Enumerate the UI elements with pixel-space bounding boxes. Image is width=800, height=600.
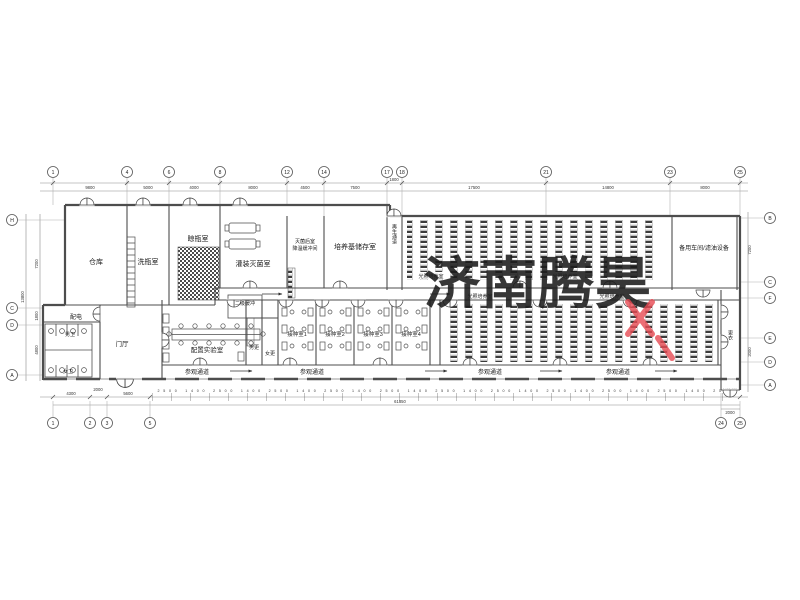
label-visit-corridor-4: 参观通道 bbox=[606, 368, 630, 376]
label-filling-room: 灌装灭菌室 bbox=[236, 259, 271, 268]
dim-left-total: 13800 bbox=[20, 291, 25, 303]
grid-right-4: D bbox=[768, 360, 772, 366]
grid-top-14: 14 bbox=[321, 170, 327, 176]
grid-bottom-24: 24 bbox=[718, 421, 724, 427]
grid-top-8: 8 bbox=[219, 170, 222, 176]
grid-bottom-25: 25 bbox=[737, 421, 743, 427]
dim-top-0: 9800 bbox=[85, 185, 95, 190]
grid-bottom-3: 3 bbox=[106, 421, 109, 427]
grid-top-25: 25 bbox=[737, 170, 743, 176]
dim-top-5: 7500 bbox=[350, 185, 360, 190]
drying-hatch-area bbox=[178, 247, 219, 300]
watermark-text: 济南腾昊 bbox=[424, 252, 652, 315]
grid-bottom-1: 1 bbox=[52, 421, 55, 427]
label-backup-workshop: 备用车间/滤油设备 bbox=[679, 244, 729, 252]
grid-left-2: D bbox=[10, 323, 14, 329]
dim-bottom-right-total: 2000 bbox=[725, 410, 735, 415]
label-inoc-4: 接种室4 bbox=[401, 330, 421, 338]
dim-left-2: 4800 bbox=[34, 345, 39, 355]
dim-bottom-0: 4300 bbox=[66, 391, 76, 396]
dim-top-8: 14800 bbox=[602, 185, 614, 190]
dim-top-3: 8000 bbox=[248, 185, 258, 190]
label-medium-storage: 培养基储存室 bbox=[334, 242, 376, 251]
label-wash-room: 洗瓶室 bbox=[138, 257, 159, 266]
label-regen-corridor: 再生通道 bbox=[391, 224, 397, 245]
label-inoc-3: 接种室3 bbox=[363, 330, 383, 338]
autoclaves bbox=[225, 223, 260, 249]
dim-left-1: 1800 bbox=[34, 311, 39, 321]
dim-bottom-1: 2000 bbox=[93, 387, 103, 392]
dim-bottom-2: 5600 bbox=[123, 391, 133, 396]
grid-left-0: H bbox=[10, 218, 14, 224]
label-inoc-1: 接种室1 bbox=[287, 330, 307, 338]
label-secondary-buffer: 二级缓冲 bbox=[235, 300, 255, 307]
grid-top-1: 1 bbox=[52, 170, 55, 176]
dim-top-7: 17500 bbox=[468, 185, 480, 190]
label-dry-room: 晾瓶室 bbox=[188, 234, 209, 243]
dim-top-9: 8000 bbox=[700, 185, 710, 190]
floor-plan-sheet: 9800 5000 4000 8000 4500 7500 1800 17500… bbox=[0, 0, 800, 600]
label-visit-corridor-3: 参观通道 bbox=[478, 368, 502, 376]
label-female-wc: 女卫 bbox=[63, 368, 73, 375]
dim-top-6: 1800 bbox=[389, 177, 399, 182]
label-male-change: 男更 bbox=[249, 345, 259, 351]
label-female-change: 女更 bbox=[265, 350, 275, 357]
grid-bottom-5: 5 bbox=[149, 421, 152, 427]
grid-right-2: F bbox=[768, 296, 771, 302]
dim-top-1: 5000 bbox=[143, 185, 153, 190]
label-prep-lab: 配置实验室 bbox=[191, 345, 224, 354]
grid-bottom-2: 2 bbox=[89, 421, 92, 427]
label-power-room: 配电 bbox=[70, 313, 82, 321]
label-inoc-2: 接种室2 bbox=[325, 330, 345, 338]
label-visit-corridor-1: 参观通道 bbox=[185, 368, 209, 376]
dim-bottom-run: 2500 1400 2500 1400 2500 1400 2500 1400 … bbox=[157, 389, 732, 393]
label-visit-corridor-2: 参观通道 bbox=[300, 368, 324, 376]
dim-top-2: 4000 bbox=[189, 185, 199, 190]
grid-top-18: 18 bbox=[399, 170, 405, 176]
grid-top-6: 6 bbox=[168, 170, 171, 176]
dim-top-4: 4500 bbox=[300, 185, 310, 190]
wash-rack bbox=[127, 237, 135, 307]
label-foyer: 门厅 bbox=[116, 339, 130, 348]
label-male-wc: 男卫 bbox=[65, 332, 75, 338]
grid-top-4: 4 bbox=[126, 170, 129, 176]
grid-top-17: 17 bbox=[384, 170, 390, 176]
label-post-sterile: 灭菌后室 bbox=[295, 238, 315, 245]
grid-top-23: 23 bbox=[667, 170, 673, 176]
dim-bottom-total: 61850 bbox=[394, 399, 406, 404]
plan-drawing: 9800 5000 4000 8000 4500 7500 1800 17500… bbox=[0, 0, 800, 600]
grid-right-1: C bbox=[768, 280, 772, 286]
dim-left-0: 7200 bbox=[34, 259, 39, 269]
label-change-corridor: 更衣 bbox=[727, 330, 733, 341]
grid-top-12: 12 bbox=[284, 170, 290, 176]
grid-left-1: C bbox=[10, 306, 14, 312]
dim-right-0: 7200 bbox=[747, 245, 752, 255]
label-cool-buffer: 降温缓冲间 bbox=[292, 245, 317, 252]
grid-top-21: 21 bbox=[543, 170, 549, 176]
label-warehouse: 仓库 bbox=[89, 257, 103, 266]
dim-right-1: 2000 bbox=[747, 347, 752, 357]
